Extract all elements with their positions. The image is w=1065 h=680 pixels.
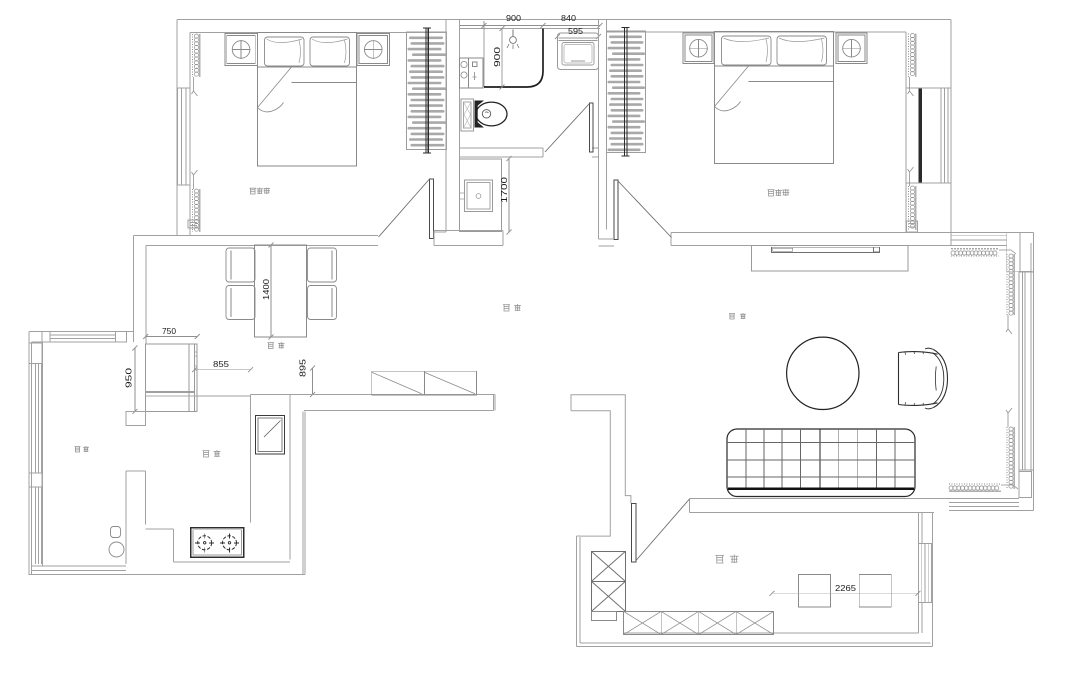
svg-text:750: 750	[162, 326, 176, 336]
svg-text:2265: 2265	[835, 583, 856, 593]
svg-text:1700: 1700	[499, 177, 509, 203]
svg-text:1400: 1400	[262, 278, 271, 300]
svg-text:895: 895	[298, 359, 308, 377]
svg-text:900: 900	[506, 13, 521, 23]
svg-text:595: 595	[568, 26, 583, 36]
svg-text:950: 950	[124, 368, 134, 388]
svg-text:840: 840	[561, 13, 576, 23]
svg-text:900: 900	[492, 47, 502, 67]
svg-text:855: 855	[213, 359, 229, 369]
